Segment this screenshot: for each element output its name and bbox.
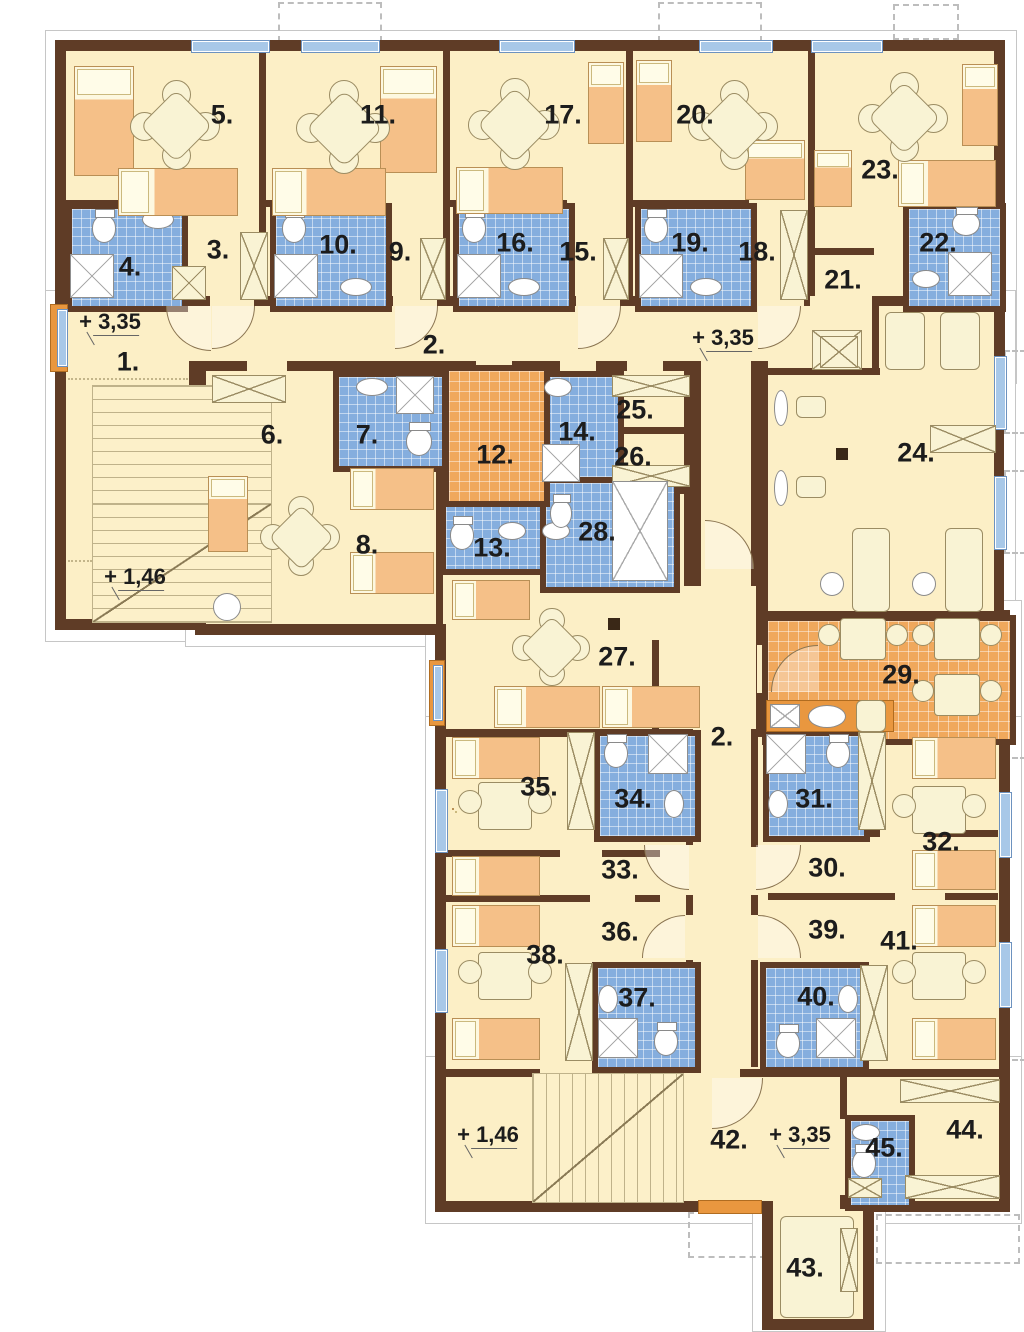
room-label-4: 4. xyxy=(119,252,142,283)
wardrobe xyxy=(603,238,629,300)
wardrobe xyxy=(567,732,595,830)
chair xyxy=(892,960,916,984)
room-label-3: 3. xyxy=(207,235,230,266)
room-label-36: 36. xyxy=(601,917,639,948)
sink xyxy=(340,278,372,296)
bed xyxy=(962,64,998,146)
partition-wall xyxy=(812,248,874,255)
room-label-37: 37. xyxy=(618,983,656,1014)
room-label-11: 11. xyxy=(360,100,396,131)
room-label-6: 6. xyxy=(261,420,284,451)
opening xyxy=(701,355,751,375)
exercise-bench xyxy=(885,312,925,370)
column xyxy=(836,448,848,460)
wardrobe xyxy=(820,336,858,368)
bed xyxy=(814,150,852,207)
toilet xyxy=(92,215,116,243)
room-label-19: 19. xyxy=(671,228,709,259)
cafe-table xyxy=(934,674,980,716)
table xyxy=(912,952,966,1000)
room-label-24: 24. xyxy=(897,438,935,469)
window xyxy=(1000,943,1011,1007)
bed xyxy=(74,66,134,176)
room-label-20: 20. xyxy=(676,100,714,131)
bed xyxy=(912,905,996,947)
door-opening xyxy=(590,895,635,902)
bed xyxy=(456,167,563,214)
bed xyxy=(636,60,672,142)
window xyxy=(995,477,1006,549)
partition-wall xyxy=(612,427,695,434)
entrance-glazing xyxy=(434,666,442,720)
floor-plan-canvas: 1. 2. 2. 3. 4. 5. 6. 7. 8. 9. 10. 11. 12… xyxy=(0,0,1024,1332)
floor-corridor-vertical xyxy=(701,371,751,622)
window xyxy=(436,790,447,852)
partition-wall xyxy=(840,1077,847,1119)
lounger xyxy=(945,528,983,612)
room-label-13: 13. xyxy=(473,533,511,564)
level-separation xyxy=(68,560,92,562)
utility-12 xyxy=(443,365,550,507)
terrace-outline xyxy=(688,1212,766,1258)
room-label-32: 32. xyxy=(922,827,960,858)
room-label-25: 25. xyxy=(616,395,654,426)
bed xyxy=(912,1018,996,1060)
wardrobe xyxy=(565,963,593,1061)
wardrobe xyxy=(900,1079,1000,1103)
partition-wall xyxy=(768,893,998,900)
bed xyxy=(118,168,238,216)
room-label-22: 22. xyxy=(919,228,957,259)
dining-table xyxy=(858,72,948,162)
entrance-door xyxy=(698,1200,762,1214)
exercise-bike xyxy=(796,396,826,418)
shower xyxy=(542,444,580,482)
bed xyxy=(452,1018,540,1060)
chair xyxy=(962,960,986,984)
wardrobe xyxy=(240,232,268,300)
shower xyxy=(639,254,683,298)
sink xyxy=(768,790,788,818)
shower xyxy=(612,481,668,581)
elevation-marker: + 3,35 xyxy=(769,1122,831,1148)
balcony-outline xyxy=(893,4,959,40)
shower xyxy=(948,252,992,296)
room-label-1: 1. xyxy=(117,347,140,378)
spacer xyxy=(452,808,454,810)
kitchen-sink xyxy=(808,705,846,728)
window xyxy=(812,41,882,52)
wardrobe xyxy=(780,210,808,300)
toilet xyxy=(604,740,628,768)
shower xyxy=(648,734,688,774)
cabinet xyxy=(848,1178,882,1198)
staircase xyxy=(532,1073,684,1203)
table xyxy=(478,952,532,1000)
room-label-8: 8. xyxy=(356,530,379,561)
dining-table xyxy=(512,608,590,686)
window xyxy=(500,41,574,52)
shower xyxy=(598,1018,638,1058)
door-opening xyxy=(560,361,596,371)
room-label-39: 39. xyxy=(808,915,846,946)
door-opening xyxy=(810,296,872,306)
door-opening xyxy=(895,893,945,900)
entrance-glazing xyxy=(58,310,67,366)
elevation-marker: + 1,46 xyxy=(457,1122,519,1148)
wardrobe xyxy=(860,965,888,1061)
room-label-2-corridor-lower: 2. xyxy=(711,722,734,753)
sink xyxy=(912,270,940,288)
terrace-outline xyxy=(876,1214,1020,1264)
door-opening xyxy=(627,361,663,371)
room-label-35: 35. xyxy=(520,772,558,803)
cooktop xyxy=(770,704,800,728)
toilet xyxy=(644,215,668,243)
room-label-29: 29. xyxy=(882,660,920,691)
partition-wall xyxy=(751,895,758,915)
bed xyxy=(588,62,624,144)
room-label-16: 16. xyxy=(496,228,534,259)
sink xyxy=(690,278,722,296)
dining-table xyxy=(260,496,340,576)
room-label-28: 28. xyxy=(578,517,616,548)
window xyxy=(700,41,772,52)
chair xyxy=(818,624,840,646)
room-label-7: 7. xyxy=(356,420,379,451)
toilet xyxy=(450,522,474,550)
room-label-15: 15. xyxy=(559,237,597,268)
wardrobe xyxy=(858,732,886,830)
exercise-bench xyxy=(940,312,980,370)
room-label-30: 30. xyxy=(808,853,846,884)
room-label-12: 12. xyxy=(476,440,514,471)
room-label-14: 14. xyxy=(558,417,596,448)
balcony-outline xyxy=(1004,470,1024,554)
cafe-table xyxy=(840,618,886,660)
wardrobe xyxy=(420,238,446,300)
lounger xyxy=(852,528,890,612)
shower xyxy=(70,254,114,298)
room-label-31: 31. xyxy=(795,784,833,815)
shower xyxy=(457,254,501,298)
bed xyxy=(602,686,700,728)
elevation-marker: + 3,35 xyxy=(692,325,754,351)
wardrobe xyxy=(172,266,206,300)
spacer xyxy=(498,306,499,307)
chair xyxy=(980,624,1002,646)
balcony-outline xyxy=(278,2,382,42)
bed xyxy=(898,160,996,207)
chair xyxy=(458,960,482,984)
room-label-21: 21. xyxy=(824,265,862,296)
room-label-41: 41. xyxy=(880,926,918,957)
room-label-9: 9. xyxy=(389,237,412,268)
door-opening xyxy=(560,850,602,857)
room-label-18: 18. xyxy=(738,237,776,268)
sink xyxy=(508,278,540,296)
sink xyxy=(838,985,858,1013)
bed xyxy=(494,686,600,728)
exercise-bike xyxy=(796,476,826,498)
washing-machine xyxy=(213,593,241,621)
room-label-10: 10. xyxy=(319,230,357,261)
bike-wheel xyxy=(774,470,788,506)
side-table xyxy=(912,572,936,596)
room-label-27: 27. xyxy=(598,642,636,673)
shower xyxy=(766,734,806,774)
toilet xyxy=(550,500,572,528)
balcony-outline xyxy=(658,2,762,42)
chair xyxy=(886,624,908,646)
room-label-40: 40. xyxy=(797,982,835,1013)
room-label-5: 5. xyxy=(211,100,234,131)
bed xyxy=(272,168,386,216)
toilet xyxy=(654,1028,678,1056)
bed xyxy=(452,856,540,896)
window xyxy=(302,41,379,52)
shower xyxy=(396,376,434,414)
room-label-23: 23. xyxy=(861,155,899,186)
stair-break-line xyxy=(533,1074,683,1202)
ladder xyxy=(840,1228,858,1292)
window xyxy=(192,41,269,52)
partition-wall xyxy=(686,895,693,915)
toilet xyxy=(462,215,486,243)
wardrobe xyxy=(930,425,996,453)
room-label-44: 44. xyxy=(946,1115,984,1146)
cafe-table xyxy=(934,618,980,660)
toilet xyxy=(826,740,850,768)
column xyxy=(608,618,620,630)
toilet xyxy=(776,1030,800,1058)
partition-wall xyxy=(751,737,758,847)
sink xyxy=(664,790,684,818)
window xyxy=(1000,793,1011,857)
partition-wall xyxy=(751,960,758,1067)
chair xyxy=(912,624,934,646)
bed xyxy=(208,476,248,552)
bed xyxy=(912,737,996,779)
balcony-outline xyxy=(1004,350,1024,434)
fridge xyxy=(856,700,886,732)
room-label-2-corridor: 2. xyxy=(423,330,446,361)
wardrobe xyxy=(212,375,286,403)
room-label-43: 43. xyxy=(786,1253,824,1284)
sink xyxy=(356,378,388,396)
chair xyxy=(892,794,916,818)
room-label-26: 26. xyxy=(614,442,652,473)
window xyxy=(995,357,1006,429)
room-label-38: 38. xyxy=(526,940,564,971)
chair xyxy=(962,794,986,818)
door-opening xyxy=(247,361,287,371)
partition-wall xyxy=(872,306,879,370)
toilet xyxy=(282,215,306,243)
room-label-33: 33. xyxy=(601,855,639,886)
dining-table xyxy=(130,80,220,170)
shower xyxy=(274,254,318,298)
room-label-42: 42. xyxy=(710,1125,748,1156)
room-label-45: 45. xyxy=(865,1133,903,1164)
chair xyxy=(980,680,1002,702)
room-label-34: 34. xyxy=(614,784,652,815)
wardrobe xyxy=(905,1175,1000,1199)
shower xyxy=(816,1018,856,1058)
sink xyxy=(544,378,572,397)
chair xyxy=(458,790,482,814)
room-label-17: 17. xyxy=(544,100,582,131)
side-table xyxy=(820,572,844,596)
elevation-marker: + 1,46 xyxy=(104,564,166,590)
level-separation xyxy=(68,378,188,380)
sink xyxy=(598,985,618,1013)
window xyxy=(436,950,447,1012)
bed xyxy=(350,468,434,510)
elevation-marker: + 3,35 xyxy=(79,309,141,335)
toilet xyxy=(406,428,432,456)
bike-wheel xyxy=(774,390,788,426)
